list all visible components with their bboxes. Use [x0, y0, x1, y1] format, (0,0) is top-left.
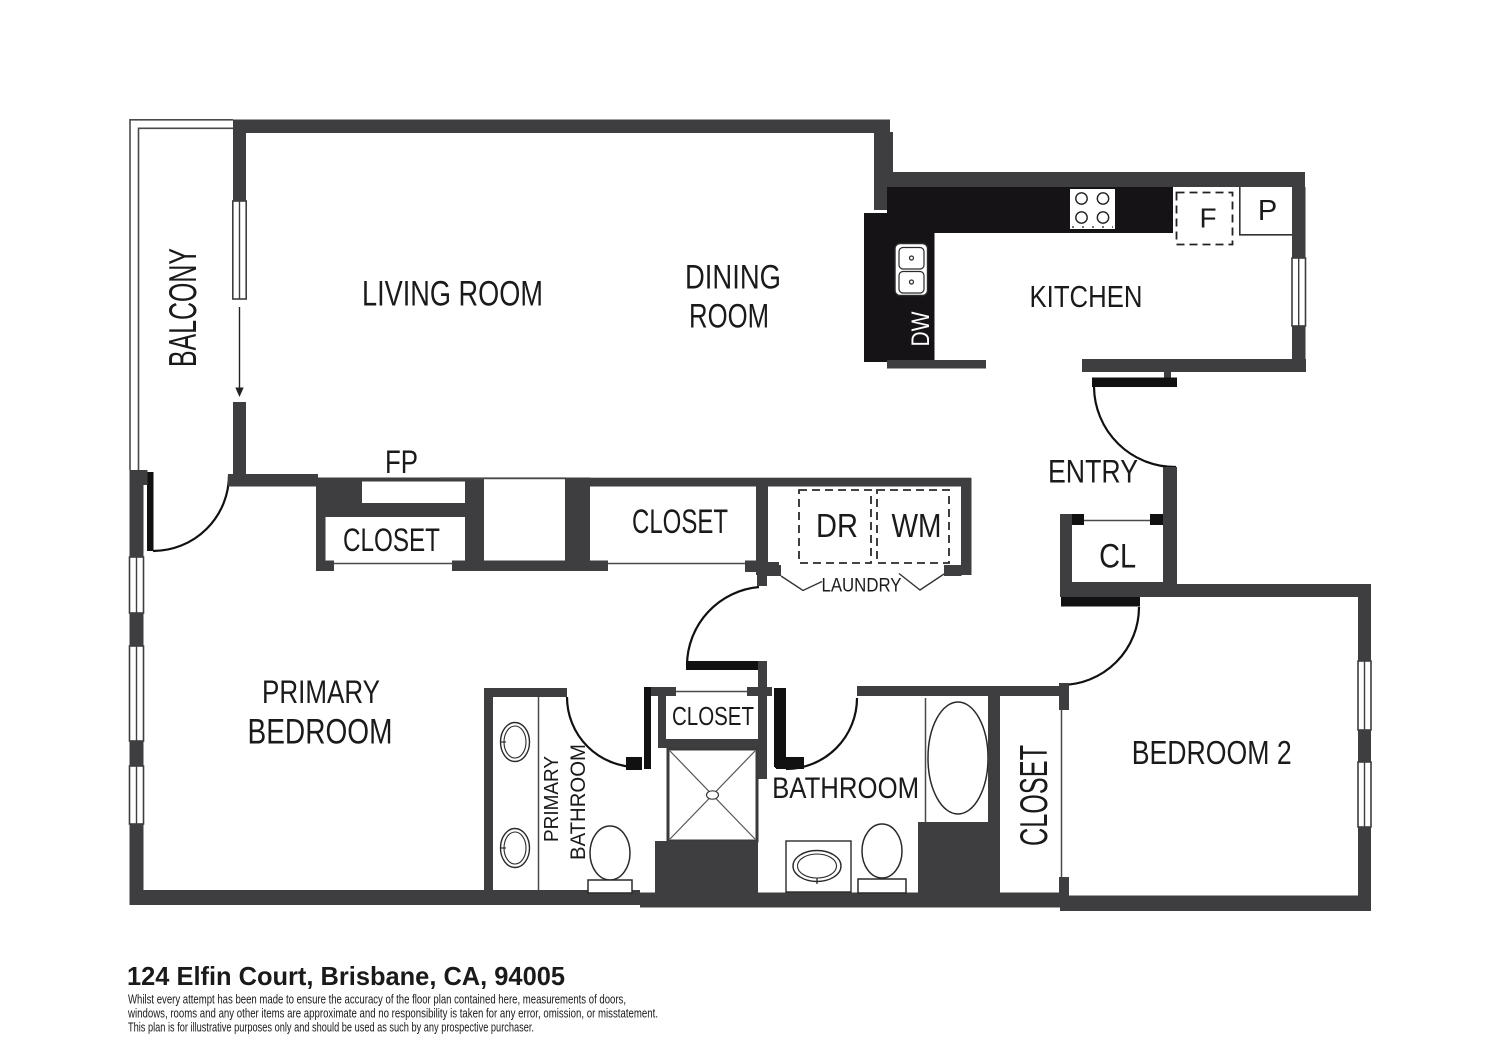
svg-text:CLOSET: CLOSET	[672, 701, 754, 731]
svg-text:ROOM: ROOM	[689, 297, 769, 335]
svg-text:F: F	[1199, 203, 1216, 234]
svg-text:ENTRY: ENTRY	[1048, 454, 1138, 490]
svg-text:windows, rooms and any other i: windows, rooms and any other items are a…	[127, 1006, 658, 1021]
svg-text:WM: WM	[892, 507, 942, 544]
svg-text:LAUNDRY: LAUNDRY	[822, 576, 902, 597]
svg-text:CLOSET: CLOSET	[1013, 745, 1056, 846]
svg-text:P: P	[1258, 195, 1277, 227]
svg-text:CLOSET: CLOSET	[343, 521, 440, 558]
svg-text:KITCHEN: KITCHEN	[1030, 280, 1143, 314]
svg-text:LIVING ROOM: LIVING ROOM	[362, 275, 543, 314]
svg-text:BATHROOM: BATHROOM	[565, 744, 590, 860]
svg-text:BALCONY: BALCONY	[162, 248, 205, 367]
svg-text:BEDROOM 2: BEDROOM 2	[1132, 735, 1292, 772]
svg-text:PRIMARY: PRIMARY	[541, 756, 563, 842]
svg-text:DW: DW	[907, 311, 935, 346]
svg-text:Whilst every attempt has been: Whilst every attempt has been made to en…	[128, 992, 626, 1007]
svg-text:BEDROOM: BEDROOM	[248, 713, 393, 752]
svg-text:BATHROOM: BATHROOM	[772, 772, 919, 805]
svg-text:This plan is for illustrative: This plan is for illustrative purposes o…	[128, 1020, 534, 1035]
svg-text:124 Elfin Court, Brisbane, CA,: 124 Elfin Court, Brisbane, CA, 94005	[127, 961, 565, 991]
svg-text:PRIMARY: PRIMARY	[262, 673, 380, 710]
svg-text:DR: DR	[816, 507, 858, 544]
svg-text:DINING: DINING	[685, 259, 781, 297]
svg-text:CLOSET: CLOSET	[632, 503, 728, 541]
svg-text:CL: CL	[1099, 538, 1136, 576]
svg-text:FP: FP	[385, 444, 418, 480]
